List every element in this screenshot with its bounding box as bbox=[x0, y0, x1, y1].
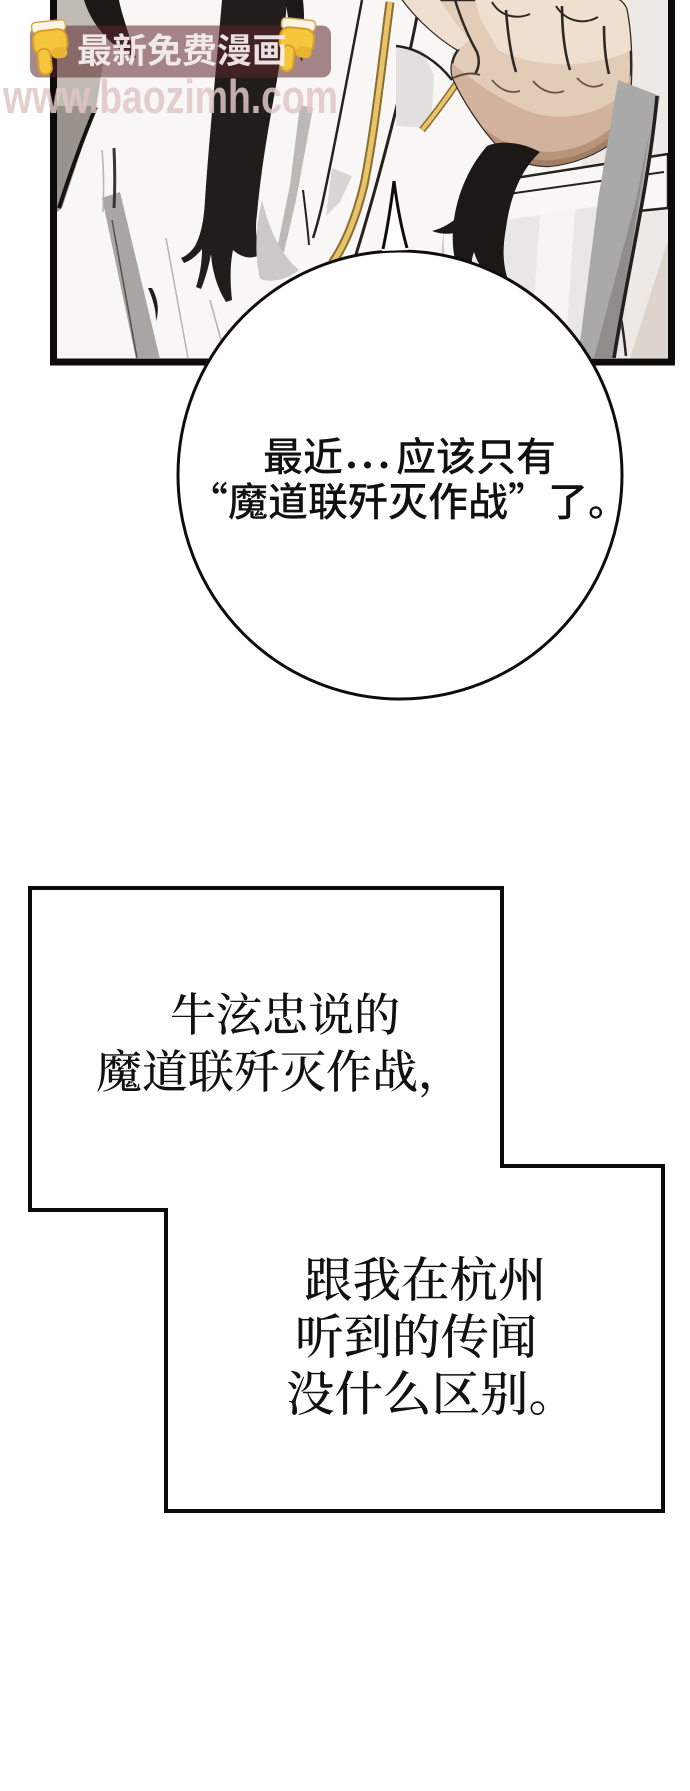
svg-text:www.baozimh.com: www.baozimh.com bbox=[2, 70, 338, 123]
